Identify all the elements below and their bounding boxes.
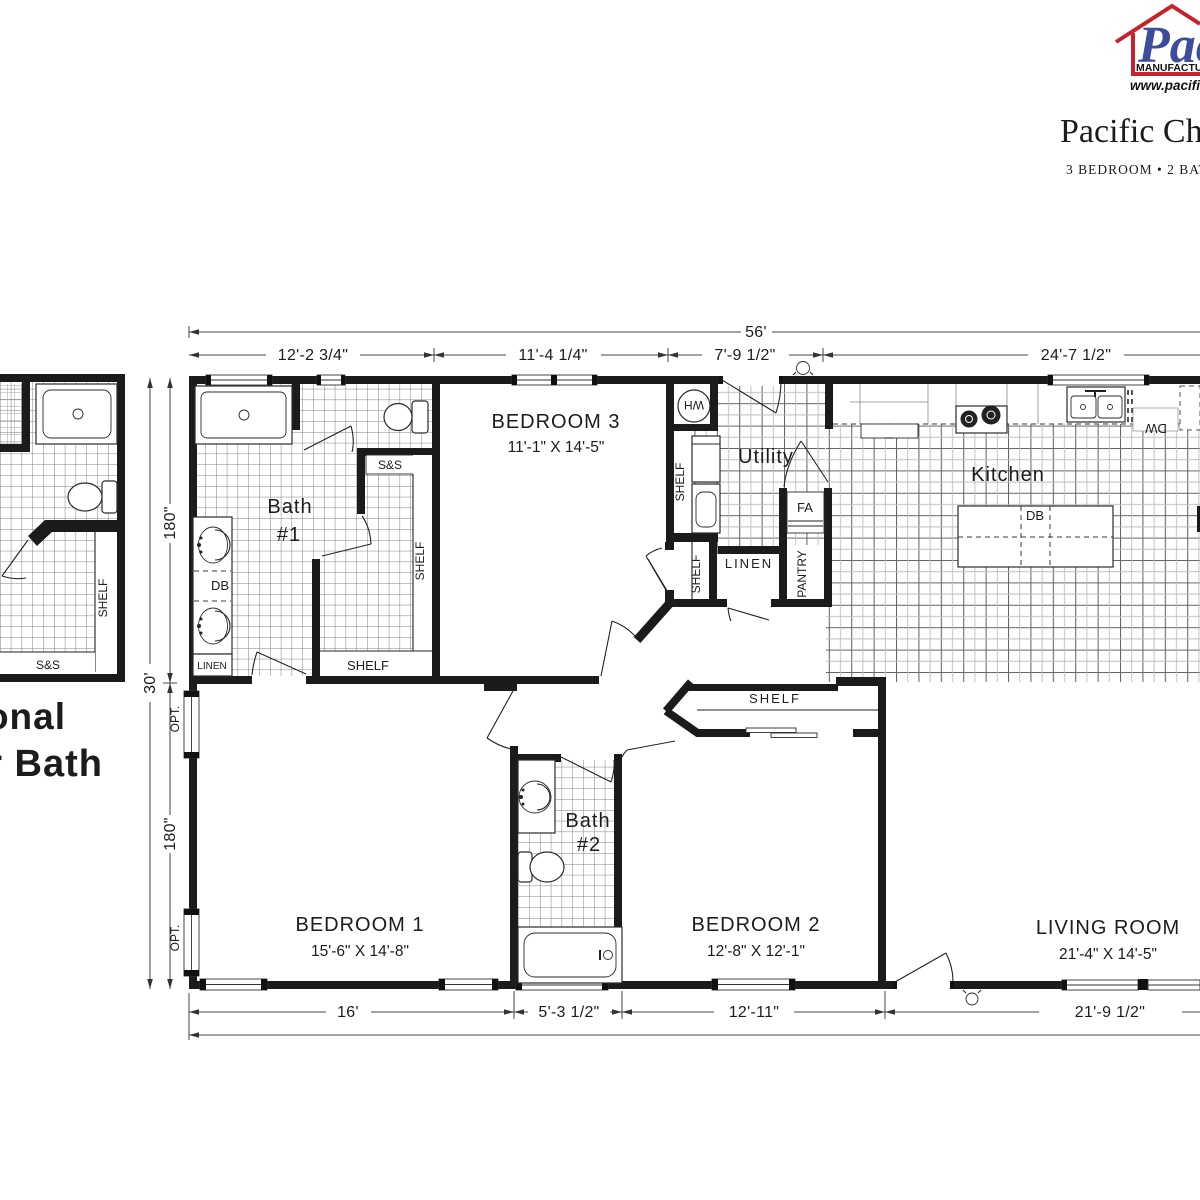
svg-text:SHELF: SHELF	[673, 463, 687, 502]
svg-text:OPT.: OPT.	[168, 706, 182, 733]
svg-text:21'-4" X 14'-5": 21'-4" X 14'-5"	[1059, 946, 1157, 963]
svg-text:SHELF: SHELF	[689, 555, 703, 594]
svg-text:LINEN: LINEN	[725, 556, 773, 571]
svg-text:OPT.: OPT.	[168, 925, 182, 952]
svg-text:LIVING ROOM: LIVING ROOM	[1036, 917, 1180, 939]
svg-text:SHELF: SHELF	[347, 658, 389, 673]
svg-text:S&S: S&S	[36, 658, 60, 672]
svg-text:30': 30'	[142, 672, 159, 694]
svg-text:12'-8" X 12'-1": 12'-8" X 12'-1"	[707, 943, 805, 960]
svg-text:DW: DW	[1144, 421, 1166, 436]
svg-text:MANUFACTUR: MANUFACTUR	[1136, 62, 1200, 74]
svg-text:3 BEDROOM • 2 BATH: 3 BEDROOM • 2 BATH	[1066, 162, 1200, 177]
svg-text:#1: #1	[277, 524, 301, 546]
svg-text:16': 16'	[337, 1004, 359, 1021]
svg-text:FA: FA	[797, 500, 813, 515]
svg-text:#2: #2	[577, 834, 601, 856]
svg-text:Bath: Bath	[267, 496, 312, 518]
svg-text:DB: DB	[1026, 508, 1044, 523]
svg-text:BEDROOM 1: BEDROOM 1	[295, 914, 424, 936]
svg-text:DB: DB	[211, 578, 229, 593]
svg-text:Bath: Bath	[565, 810, 610, 832]
svg-text:SHELF: SHELF	[749, 691, 801, 706]
svg-text:SHELF: SHELF	[413, 542, 427, 581]
svg-text:180": 180"	[162, 506, 179, 540]
svg-text:12'-2 3/4": 12'-2 3/4"	[278, 347, 348, 364]
svg-text:21'-9 1/2": 21'-9 1/2"	[1075, 1004, 1145, 1021]
svg-text:180": 180"	[162, 817, 179, 851]
svg-text:Utility: Utility	[738, 446, 794, 468]
svg-text:24'-7 1/2": 24'-7 1/2"	[1041, 347, 1111, 364]
svg-text:S&S: S&S	[378, 458, 402, 472]
svg-text:SHELF: SHELF	[96, 579, 110, 618]
svg-text:56': 56'	[745, 324, 767, 341]
svg-text:BEDROOM 3: BEDROOM 3	[491, 411, 620, 433]
svg-text:r Bath: r Bath	[0, 743, 103, 785]
svg-text:PANTRY: PANTRY	[795, 550, 809, 598]
svg-text:11'-4 1/4": 11'-4 1/4"	[518, 347, 587, 364]
svg-text:5'-3 1/2": 5'-3 1/2"	[538, 1004, 599, 1021]
svg-text:Pacific Chief: Pacific Chief	[1060, 113, 1200, 150]
svg-text:BEDROOM 2: BEDROOM 2	[691, 914, 820, 936]
svg-text:Kitchen: Kitchen	[971, 464, 1045, 486]
svg-text:15'-6" X 14'-8": 15'-6" X 14'-8"	[311, 943, 409, 960]
svg-text:11'-1" X 14'-5": 11'-1" X 14'-5"	[508, 439, 605, 456]
svg-text:www.pacificm: www.pacificm	[1130, 78, 1200, 93]
svg-text:LINEN: LINEN	[197, 661, 226, 672]
svg-text:7'-9 1/2": 7'-9 1/2"	[714, 347, 775, 364]
svg-text:12'-11": 12'-11"	[729, 1004, 780, 1021]
svg-text:WH: WH	[684, 398, 704, 412]
svg-text:onal: onal	[0, 696, 66, 737]
